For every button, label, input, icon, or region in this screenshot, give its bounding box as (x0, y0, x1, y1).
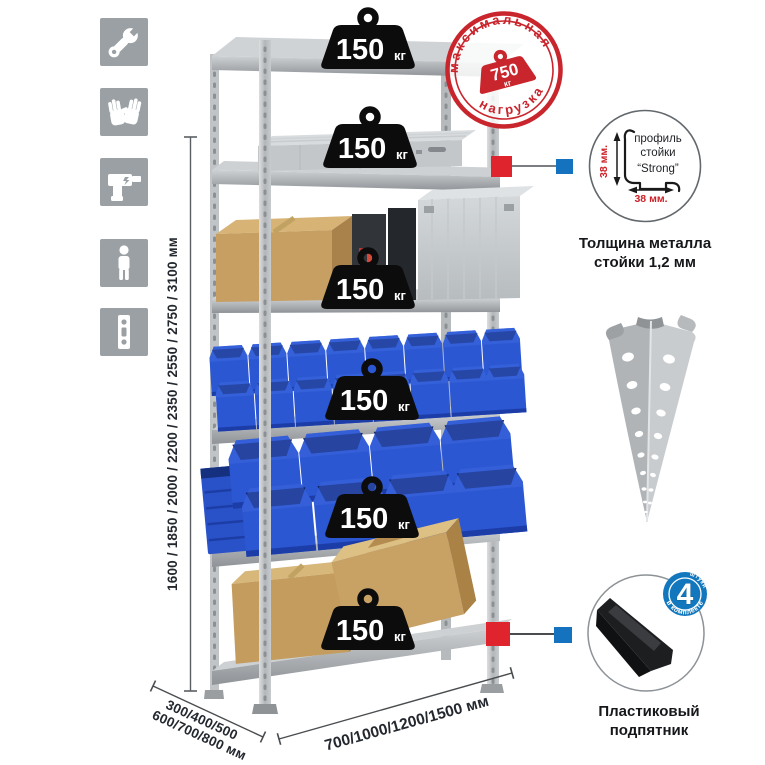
weight-badge-2: 150 кг (323, 110, 417, 169)
svg-text:кг: кг (394, 288, 407, 303)
weight-badge-1: 150 кг (321, 11, 415, 70)
person-icon (100, 239, 148, 287)
drill-icon (100, 158, 148, 206)
svg-text:кг: кг (394, 48, 407, 63)
svg-text:150: 150 (338, 133, 386, 165)
blue-marker-bottom (554, 627, 572, 643)
profile-caption-line2: стойки 1,2 мм (594, 254, 696, 271)
svg-text:150: 150 (336, 34, 384, 66)
profile-connector (491, 156, 573, 177)
foot-detail-circle: 4 штуки в комплекте (588, 571, 707, 691)
foot-connector (486, 622, 572, 646)
svg-text:кг: кг (394, 629, 407, 644)
foot-caption-line1: Пластиковый (598, 703, 699, 720)
svg-text:“Strong”: “Strong” (637, 163, 679, 175)
svg-text:150: 150 (340, 385, 388, 417)
feature-icons-column (100, 18, 148, 356)
svg-text:стойки: стойки (640, 147, 675, 159)
upright-corner-image (606, 315, 696, 522)
foot-caption-line2: подпятник (610, 722, 689, 739)
red-marker-top (491, 156, 512, 177)
svg-text:кг: кг (398, 517, 411, 532)
svg-text:кг: кг (396, 147, 409, 162)
blue-marker-top (556, 159, 573, 174)
width-dimension: 700/1000/1200/1500 мм (277, 667, 513, 754)
profile-detail-circle: 38 мм. 38 мм. профиль стойки “Strong” (590, 111, 701, 222)
svg-text:профиль: профиль (634, 133, 682, 145)
included-count-badge: 4 штуки в комплекте (663, 571, 707, 616)
height-dimension: 1600 / 1850 / 2000 / 2200 / 2350 / 2550 … (165, 137, 197, 691)
svg-text:1600 / 1850 / 2000 / 2200 / 23: 1600 / 1850 / 2000 / 2200 / 2350 / 2550 … (165, 237, 180, 591)
shelving-rack-infographic: 150 кг 150 кг 150 кг 150 кг 150 кг 150 к… (0, 0, 765, 765)
perforated-profile-icon (100, 308, 148, 356)
wrench-icon (100, 18, 148, 66)
gloves-icon (100, 88, 148, 136)
svg-text:38 мм.: 38 мм. (634, 193, 667, 205)
max-load-stamp: максимальная нагрузка 750 кг (434, 0, 573, 139)
svg-text:150: 150 (340, 503, 388, 535)
profile-caption-line1: Толщина металла (579, 235, 712, 252)
svg-text:150: 150 (336, 615, 384, 647)
svg-text:38 мм.: 38 мм. (598, 145, 610, 178)
svg-text:150: 150 (336, 274, 384, 306)
svg-text:кг: кг (398, 399, 411, 414)
red-marker-bottom (486, 622, 510, 646)
svg-text:4: 4 (677, 578, 694, 611)
